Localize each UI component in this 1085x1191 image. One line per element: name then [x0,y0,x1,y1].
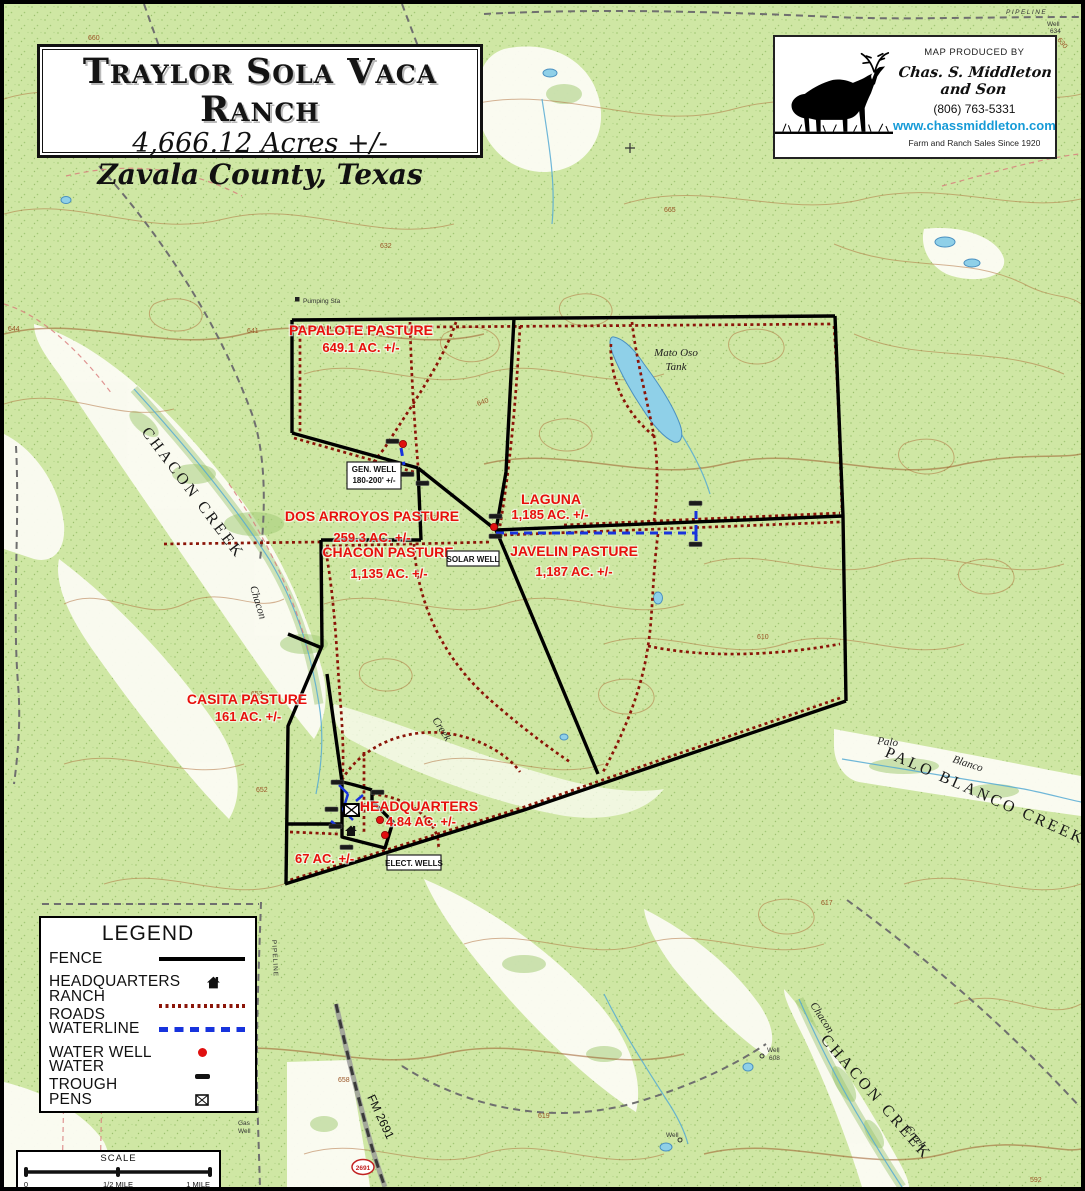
svg-text:259.3 AC. +/-: 259.3 AC. +/- [333,530,410,545]
legend-row-pens: PENS [49,1088,247,1112]
fm-shield-number: 2691 [356,1165,371,1172]
svg-text:592: 592 [1030,1177,1042,1184]
scale-tick-0: 0 [24,1180,28,1189]
svg-text:JAVELIN PASTURE: JAVELIN PASTURE [510,543,638,559]
svg-text:161 AC. +/-: 161 AC. +/- [215,709,281,724]
svg-text:617: 617 [821,900,833,907]
pens-icon [344,804,359,816]
gen-well-box: GEN. WELL 180-200' +/- [347,462,401,489]
svg-text:632: 632 [380,243,392,250]
svg-text:CASITA PASTURE: CASITA PASTURE [187,691,307,707]
company-tagline: Farm and Ranch Sales Since 1920 [893,138,1056,148]
ranch-map: 2691 [0,0,1085,1191]
well-top-num: 634 [1050,28,1061,35]
scale-tick-half: 1/2 MILE [103,1180,133,1189]
scale-title: SCALE [18,1153,219,1164]
svg-text:660: 660 [88,35,100,42]
elect-wells-box: ELECT. WELLS [385,855,443,870]
produced-by-label: MAP PRODUCED BY [893,47,1056,58]
pipeline-top-label: PIPELINE [1006,9,1047,16]
scale-bar-graphic: 0 1/2 MILE 1 MILE [18,1164,218,1190]
svg-text:619: 619 [538,1113,550,1120]
ranch-location: Zavala County, Texas [40,159,480,191]
legend-title: LEGEND [49,922,247,946]
legend-box: LEGEND FENCE HEADQUARTERS RANCH ROADS WA… [39,916,257,1113]
well-bottom-label: Well [666,1132,679,1139]
waterline-line-symbol [159,1027,245,1032]
svg-text:1,185 AC. +/-: 1,185 AC. +/- [511,507,588,522]
pasture-label-small-parcel: 67 AC. +/- [295,851,354,866]
svg-text:649.1 AC. +/-: 649.1 AC. +/- [322,340,399,355]
svg-text:GEN. WELL: GEN. WELL [352,465,397,474]
title-box: Traylor Sola Vaca Ranch 4,666.12 Acres +… [37,44,483,158]
svg-text:4.84 AC. +/-: 4.84 AC. +/- [386,814,456,829]
well-608-num: 608 [769,1055,780,1062]
company-name: Chas. S. Middleton and Son [891,64,1057,98]
legend-row-ranch-roads: RANCH ROADS [49,994,247,1018]
producer-box: MAP PRODUCED BY Chas. S. Middleton and S… [773,35,1057,159]
house-icon [180,976,247,989]
scale-bar: SCALE 0 1/2 MILE 1 MILE [16,1150,221,1191]
svg-text:658: 658 [338,1077,350,1084]
svg-text:652: 652 [256,787,268,794]
svg-text:SOLAR WELL: SOLAR WELL [447,555,500,564]
ranch-name: Traylor Sola Vaca Ranch [40,53,480,129]
svg-text:1,187 AC. +/-: 1,187 AC. +/- [535,564,612,579]
mato-oso-label-1: Mato Oso [653,347,698,359]
legend-row-fence: FENCE [49,947,247,971]
well-608-label: Well [767,1047,780,1054]
solar-well-box: SOLAR WELL [447,551,500,566]
deer-silhouette-icon [775,37,893,157]
svg-text:DOS ARROYOS PASTURE: DOS ARROYOS PASTURE [285,508,459,524]
svg-text:HEADQUARTERS: HEADQUARTERS [360,798,478,814]
mato-oso-label-2: Tank [666,361,688,373]
gas-well-label-1: Gas [238,1120,251,1127]
pumping-station-icon [295,297,300,302]
svg-text:LAGUNA: LAGUNA [521,491,581,507]
ranch-acreage: 4,666.12 Acres +/- [40,129,480,159]
svg-text:610: 610 [757,634,769,641]
water-well-dot-icon [198,1048,207,1057]
fm-2691-shield: 2691 [352,1160,374,1175]
svg-text:180-200' +/-: 180-200' +/- [352,476,395,485]
svg-text:PAPALOTE PASTURE: PAPALOTE PASTURE [289,322,433,338]
company-website-link[interactable]: www.chassmiddleton.com [893,118,1056,133]
water-trough-icon [195,1074,210,1079]
ranch-road-line-symbol [159,1004,245,1008]
gas-well-label-2: Well [238,1128,251,1135]
pasture-label-laguna: LAGUNA 1,185 AC. +/- [511,491,588,522]
fence-line-symbol [159,957,245,961]
scale-tick-full: 1 MILE [186,1180,210,1189]
svg-text:CHACON PASTURE: CHACON PASTURE [322,544,453,560]
svg-text:ELECT. WELLS: ELECT. WELLS [385,859,443,868]
pumping-sta-label: Pumping Sta [303,298,341,305]
legend-row-water-trough: WATER TROUGH [49,1065,247,1089]
svg-text:644: 644 [8,326,20,333]
company-phone: (806) 763-5331 [893,102,1056,116]
pens-boxed-x-icon [157,1094,247,1106]
legend-row-waterline: WATERLINE [49,1018,247,1042]
svg-text:1,135 AC. +/-: 1,135 AC. +/- [350,566,427,581]
well-top-label: Well [1047,21,1060,28]
svg-text:665: 665 [664,207,676,214]
svg-text:641: 641 [247,328,259,335]
